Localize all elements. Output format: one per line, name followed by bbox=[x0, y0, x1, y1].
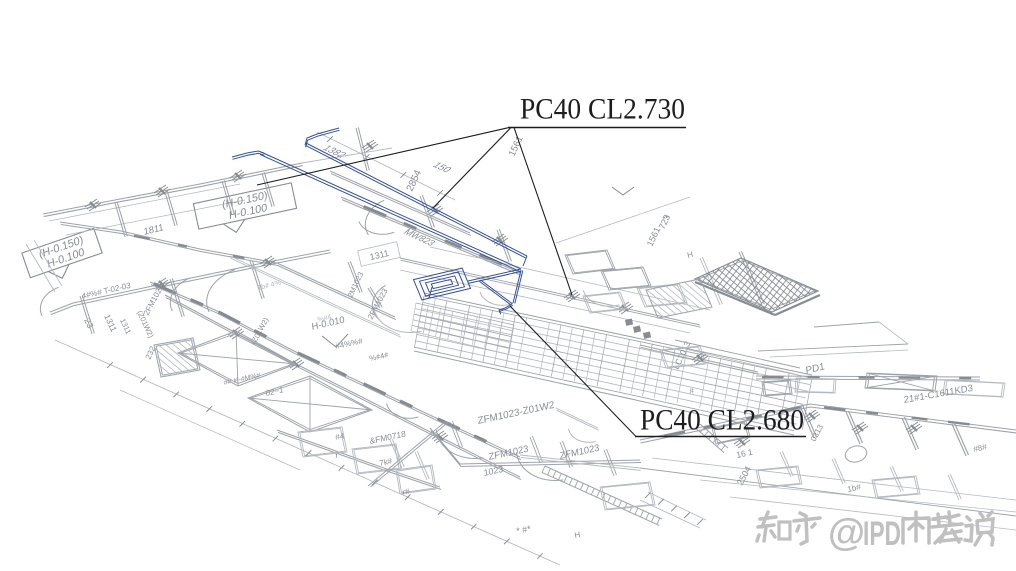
svg-text:@: @ bbox=[828, 512, 865, 554]
svg-text:PC40 CL2.680: PC40 CL2.680 bbox=[640, 404, 804, 437]
svg-text:PC40 CL2.730: PC40 CL2.730 bbox=[520, 93, 685, 126]
svg-text:IPD: IPD bbox=[863, 515, 901, 553]
